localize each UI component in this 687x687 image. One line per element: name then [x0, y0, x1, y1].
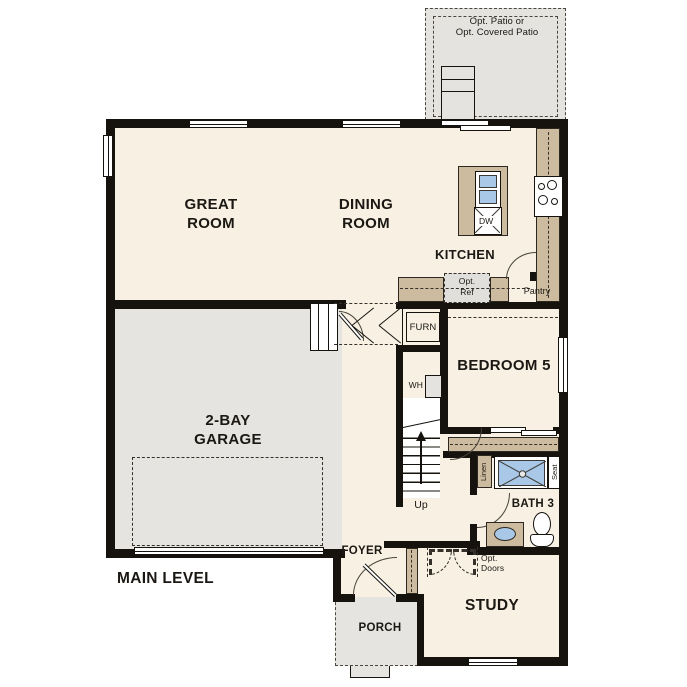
- bedroom5-soffit-dashed: [448, 317, 558, 318]
- stove-icon: [534, 176, 563, 217]
- toilet-icon-bowl: [533, 512, 551, 536]
- hall-opening-dashed-bottom: [334, 344, 398, 345]
- foyer-study-chase: [406, 548, 418, 594]
- opt-doors-label: Opt. Doors: [481, 553, 517, 573]
- wall-left: [106, 119, 115, 558]
- stove-burner: [538, 195, 548, 205]
- sink-basin: [479, 190, 497, 204]
- wall-furn-bottom: [396, 345, 448, 352]
- floor-plan-canvas: Opt. Patio or Opt. Covered Patio: [0, 0, 687, 687]
- great-room-label: GREAT ROOM: [151, 196, 271, 234]
- stairs-up-label: Up: [403, 499, 439, 512]
- garage-door: [134, 547, 324, 555]
- window-line: [190, 124, 247, 125]
- garage-label: 2-BAY GARAGE: [168, 412, 288, 450]
- garage-entry-door-frame-line: [318, 304, 319, 350]
- great-room-window-top: [189, 120, 248, 128]
- dishwasher-icon: DW: [474, 207, 502, 235]
- patio-fireplace: [441, 66, 475, 122]
- counter-dashed-line: [400, 288, 530, 289]
- stove-burner: [538, 183, 545, 190]
- patio-fireplace-line: [442, 79, 474, 80]
- dining-room-window-top: [342, 120, 401, 128]
- shower-icon: [494, 456, 548, 489]
- vanity-sink-icon: [494, 527, 516, 541]
- linen-label: Linen: [479, 455, 488, 488]
- toilet-icon-base: [530, 534, 554, 547]
- patio-sliding-door: [460, 125, 511, 131]
- bedroom5-closet-slider: [521, 430, 557, 436]
- shower-x-lines: [499, 461, 546, 487]
- kitchen-counter-bottom-left: [398, 277, 444, 302]
- shower-pan: [498, 460, 545, 486]
- porch-step: [350, 666, 390, 678]
- study-label: STUDY: [432, 596, 552, 615]
- pantry-label: Pantry: [515, 286, 559, 297]
- water-heater-box: [425, 375, 442, 398]
- window-line: [469, 662, 517, 663]
- garage-door-line: [135, 551, 323, 552]
- kitchen-sink-icon: [475, 171, 501, 208]
- shower-seat-label: Seat: [550, 456, 559, 489]
- stove-burner: [551, 198, 558, 205]
- water-heater-label: WH: [402, 380, 423, 391]
- wall-linen-left: [470, 451, 477, 495]
- wall-foyer-front-right: [396, 594, 424, 602]
- foyer-label: FOYER: [336, 544, 388, 558]
- dishwasher-label: DW: [478, 216, 494, 226]
- wall-stairs-left: [396, 345, 403, 507]
- dining-room-label: DINING ROOM: [306, 196, 426, 234]
- hall-opening-dashed-top: [334, 303, 398, 304]
- opt-patio-label: Opt. Patio or Opt. Covered Patio: [432, 16, 562, 38]
- kitchen-counter-bottom-right: [490, 277, 509, 302]
- great-room-window-left: [103, 135, 113, 177]
- window-line: [108, 136, 109, 176]
- level-title: MAIN LEVEL: [117, 569, 277, 588]
- furnace-box: FURN: [402, 308, 444, 346]
- garage-entry-door-frame-line: [328, 304, 329, 350]
- garage-ceiling-dashed-outline: [132, 457, 323, 546]
- bath3-label: BATH 3: [502, 497, 564, 511]
- patio-fireplace-line: [442, 91, 474, 92]
- window-line: [343, 124, 400, 125]
- porch-label: PORCH: [342, 621, 418, 635]
- study-window: [468, 658, 518, 666]
- furnace-box-inner: FURN: [406, 312, 440, 342]
- wall-foyer-front-left: [333, 594, 355, 602]
- sink-basin: [479, 175, 497, 188]
- foyer-chase-dashed: [411, 550, 412, 592]
- bedroom5-label: BEDROOM 5: [445, 357, 563, 376]
- wall-porch-study: [417, 594, 424, 666]
- stove-burner: [547, 180, 557, 190]
- up-arrow-shaft: [420, 440, 422, 484]
- kitchen-label: KITCHEN: [431, 247, 499, 263]
- furnace-label: FURN: [410, 322, 437, 333]
